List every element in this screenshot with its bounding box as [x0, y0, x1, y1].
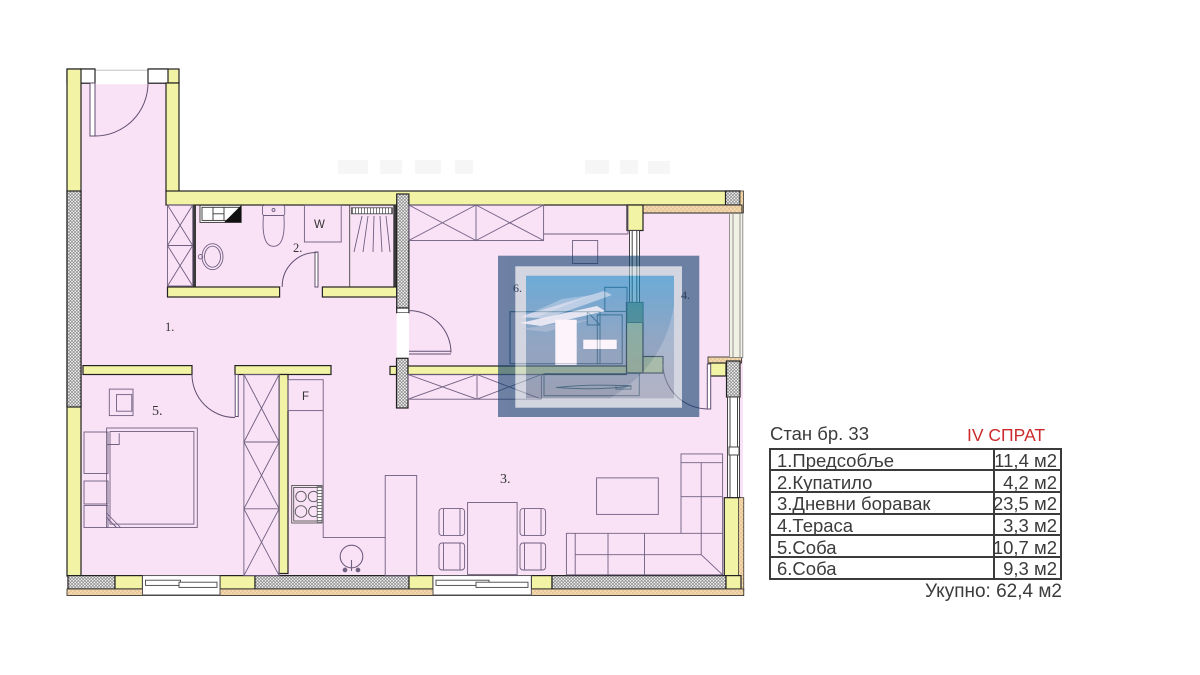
svg-text:4.: 4. — [681, 288, 690, 302]
svg-text:W: W — [314, 219, 325, 231]
svg-text:6.: 6. — [513, 281, 522, 295]
svg-text:3.: 3. — [500, 472, 511, 487]
svg-text:1.: 1. — [165, 320, 174, 334]
svg-text:5.: 5. — [152, 404, 163, 419]
svg-text:F: F — [302, 391, 309, 403]
svg-text:2.: 2. — [293, 241, 302, 255]
